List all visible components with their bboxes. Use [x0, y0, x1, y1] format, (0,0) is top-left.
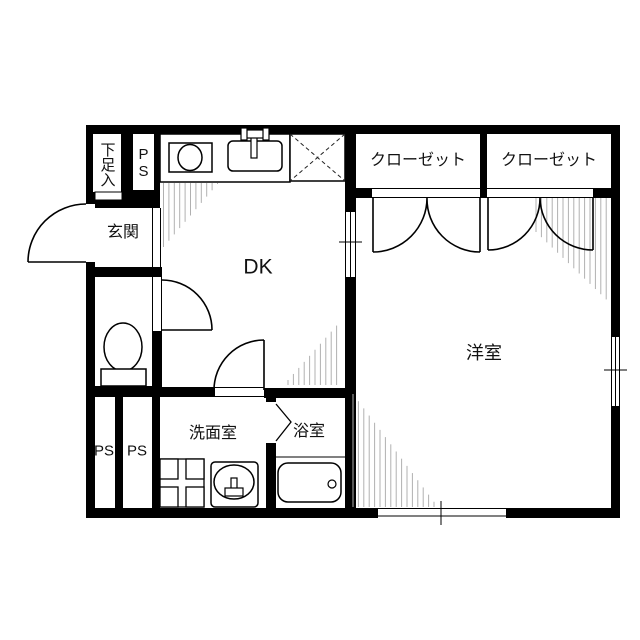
room-label-entrance: 玄関: [107, 225, 139, 241]
dk-sliding-door-icon: [339, 212, 362, 277]
washroom-door-icon: [214, 340, 264, 390]
shoe-cabinet-opening: [95, 192, 122, 200]
hatch-room-topright: [536, 198, 606, 299]
room-label-western-room: 洋室: [466, 344, 502, 362]
closet-right-double-door-icon: [488, 198, 593, 250]
floorplan: 下足入 PS 玄関 DK クローゼット クローゼット 洋室 洗面室 浴室 PS …: [0, 0, 640, 640]
room-label-closet-left: クローゼット: [370, 153, 466, 169]
closet-left-double-door-icon: [373, 198, 480, 252]
right-wall-window-icon: [604, 337, 627, 406]
bath-door-opening: [266, 402, 276, 443]
room-label-ps-top: PS: [132, 136, 155, 190]
room-label-washroom: 洗面室: [189, 426, 237, 442]
entrance-door-opening: [86, 204, 95, 262]
hatch-kitchen: [164, 183, 218, 247]
room-label-ps-bottom-right: PS: [127, 444, 147, 459]
hatching: [164, 183, 607, 507]
entrance-door-icon: [28, 204, 86, 262]
stove-icon: [169, 143, 212, 172]
room-label-bathroom: 浴室: [293, 424, 325, 440]
toilet-icon: [101, 323, 146, 386]
room-label-ps-bottom-left: PS: [94, 444, 114, 459]
room-label-closet-right: クローゼット: [501, 153, 597, 169]
room-label-shoe-cabinet: 下足入: [93, 136, 121, 192]
thin-lines: [153, 189, 612, 458]
floorplan-drawing: [0, 0, 640, 640]
hatch-room-bottomleft: [353, 394, 434, 507]
washbasin-icon: [211, 462, 258, 507]
washroom-door-jambs: [215, 388, 264, 397]
refrigerator-space-icon: [290, 134, 345, 181]
bath-folding-door-icon: [276, 404, 291, 441]
washing-machine-pan-icon: [160, 459, 204, 507]
toilet-door-icon: [162, 280, 212, 330]
kitchen-counter: [160, 128, 290, 182]
toilet-door-jambs: [153, 277, 162, 331]
room-label-dk: DK: [243, 257, 272, 278]
entrance-step-edge: [153, 208, 161, 267]
hatch-dk-corner: [288, 326, 337, 385]
sliding-window-icons: [339, 212, 627, 525]
bathtub-icon: [278, 463, 341, 502]
